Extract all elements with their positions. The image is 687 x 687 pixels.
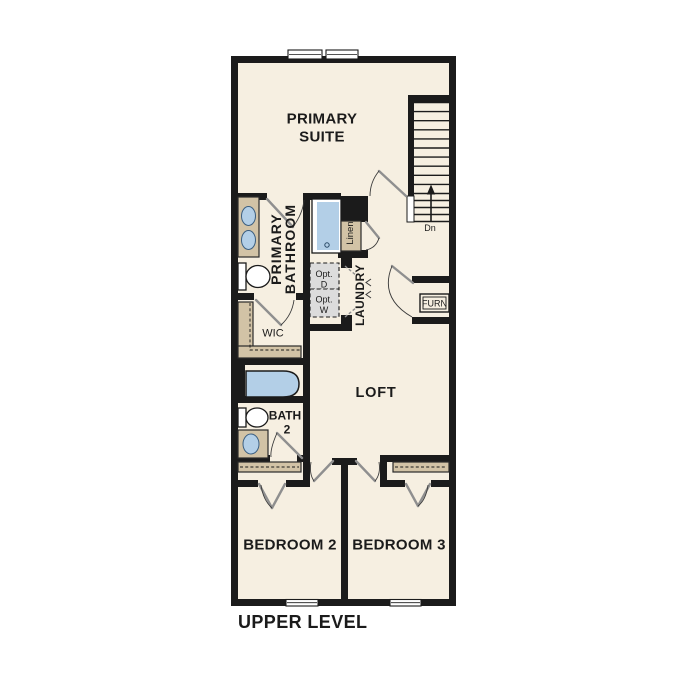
optional-washer-line1: Opt.: [315, 295, 332, 305]
wall-segment: [387, 455, 449, 462]
wall-segment: [303, 455, 310, 487]
wall-segment: [238, 293, 254, 300]
wall-segment: [449, 56, 456, 606]
wall-segment: [231, 56, 238, 606]
bath2-label-line1: BATH: [269, 409, 301, 423]
bedroom3-label: BEDROOM 3: [352, 537, 446, 554]
wall-segment: [238, 365, 245, 399]
toilet-bowl: [246, 266, 270, 288]
wall-segment: [341, 458, 348, 602]
sink-basin: [242, 207, 256, 226]
loft-label: LOFT: [355, 385, 396, 401]
furnace-closet: FURN: [420, 294, 449, 312]
optional-washer-line2: W: [320, 305, 329, 315]
primary-suite-label-line2: SUITE: [299, 129, 345, 146]
furnace-label: FURN: [422, 299, 447, 309]
wall-segment: [380, 455, 387, 487]
wall-segment: [387, 480, 405, 487]
optional-dryer-line2: D: [321, 280, 328, 290]
wall-segment: [412, 276, 449, 283]
wall-segment: [408, 95, 414, 196]
wic-label: WIC: [262, 328, 283, 340]
primary-bathroom-label-line2: BATHROOM: [282, 204, 298, 294]
sink-basin: [243, 434, 259, 454]
stair-door-opening: [407, 196, 414, 222]
bedroom2-label: BEDROOM 2: [243, 537, 337, 554]
laundry-label: LAUNDRY: [353, 264, 367, 326]
wall-segment: [341, 250, 352, 268]
wic-shelf: [238, 346, 301, 358]
linen-label: Linen: [345, 221, 356, 244]
wall-segment: [303, 324, 352, 331]
stair-direction-label: Dn: [424, 223, 436, 233]
toilet-tank: [238, 263, 246, 290]
plan-title: UPPER LEVEL: [238, 612, 367, 632]
wall-segment: [338, 196, 368, 222]
floor-plan-svg: Dn Linen Opt. D Opt. W: [0, 0, 687, 687]
floor-plan-page: Dn Linen Opt. D Opt. W: [0, 0, 687, 687]
toilet-tank: [238, 408, 246, 427]
wall-segment: [231, 358, 308, 365]
wall-segment: [286, 480, 303, 487]
wall-segment: [431, 480, 449, 487]
sink-basin: [242, 231, 256, 250]
bathtub: [246, 371, 299, 397]
wall-segment: [238, 480, 258, 487]
toilet-bowl: [246, 408, 268, 427]
primary-suite-label-line1: PRIMARY: [287, 111, 358, 128]
wall-segment: [412, 317, 449, 324]
optional-dryer-line1: Opt.: [315, 269, 332, 279]
wall-segment: [408, 95, 449, 102]
bath2-label-line2: 2: [284, 423, 291, 437]
